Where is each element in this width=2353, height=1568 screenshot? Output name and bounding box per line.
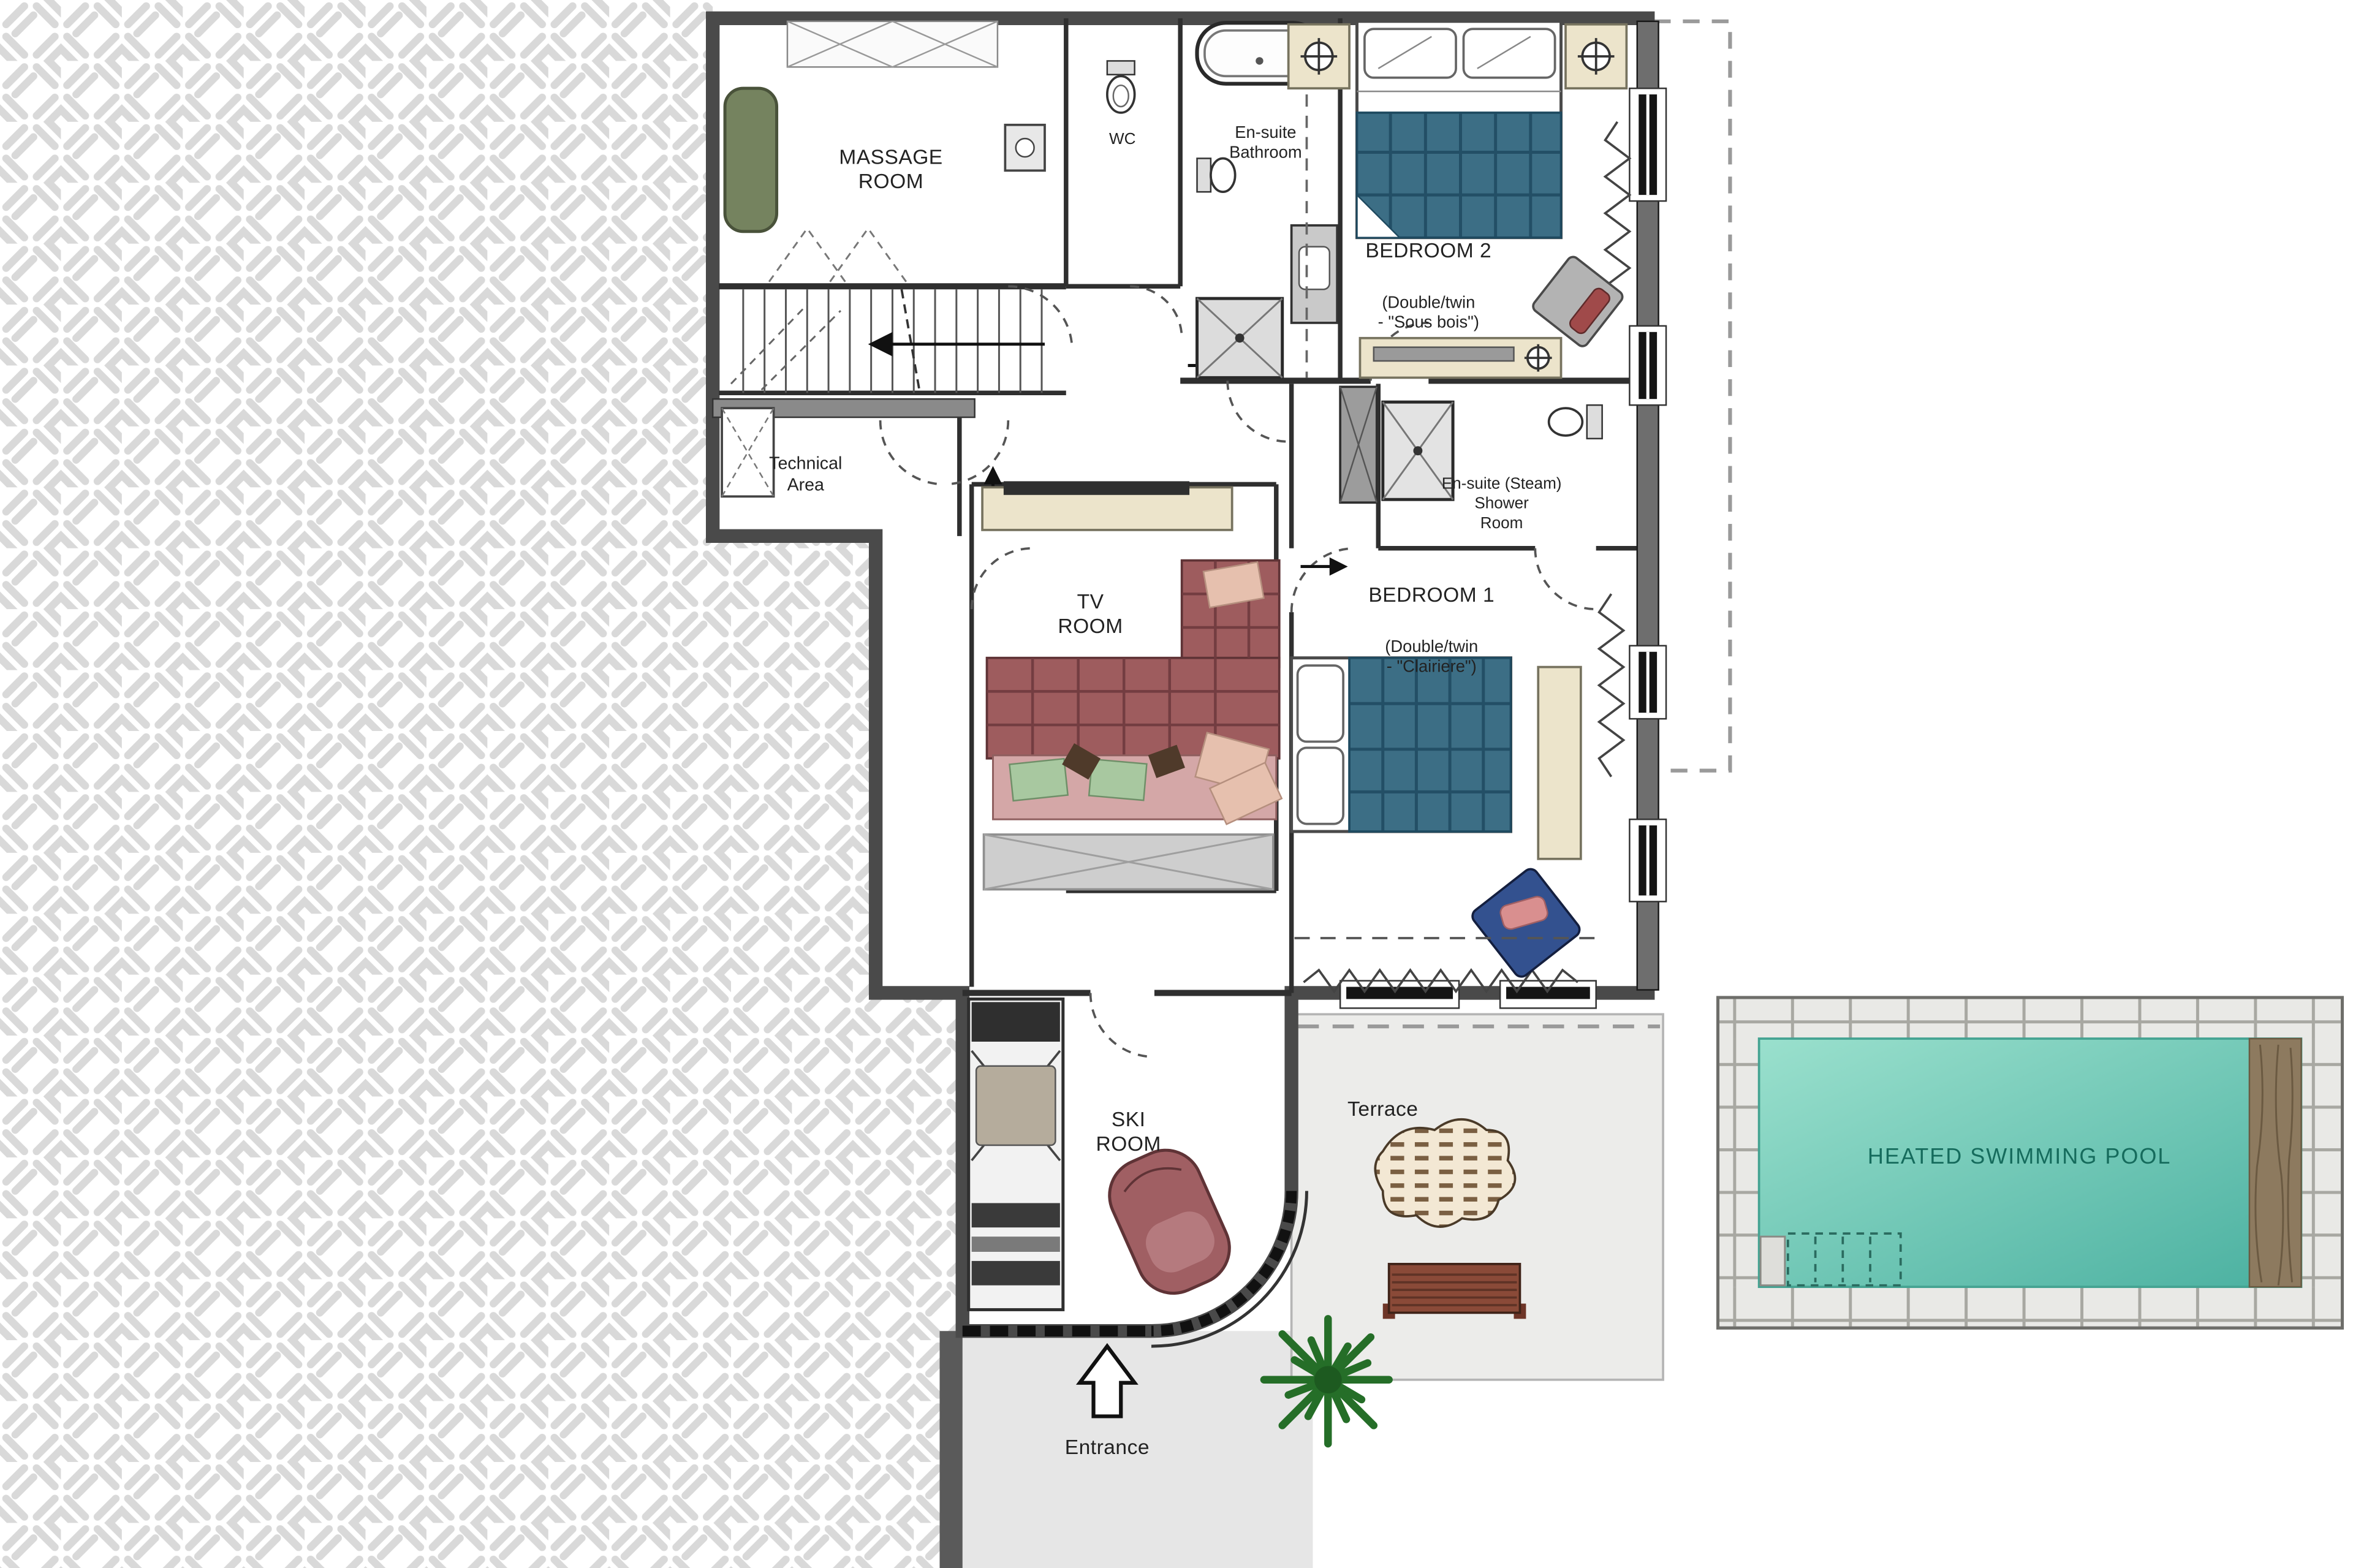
- terrace-bench: [1383, 1264, 1526, 1319]
- walkway-wall: [939, 1331, 962, 1568]
- wc-toilet: [1107, 61, 1135, 113]
- floor-plan-page: MASSAGE ROOM WC En-suite Bathroom BEDROO…: [0, 0, 2353, 1568]
- tv: [1004, 481, 1189, 494]
- bath-toilet: [1211, 158, 1235, 192]
- bed-2-blanket: [1357, 113, 1561, 238]
- window-bench: [1538, 667, 1581, 859]
- entrance-walkway: [963, 1331, 1313, 1568]
- bed-1-blanket: [1349, 658, 1510, 831]
- stair-closet: [722, 408, 774, 496]
- ski-cabinet: [969, 999, 1063, 1309]
- massage-table: [725, 88, 777, 232]
- pool-water: [1759, 1039, 2302, 1287]
- pool-deck: [2249, 1039, 2302, 1287]
- floor-plan: MASSAGE ROOM WC En-suite Bathroom BEDROO…: [0, 0, 2353, 1568]
- tree-icon: [1264, 1319, 1389, 1444]
- rug: [984, 835, 1273, 889]
- floor-plan-drawing: [0, 0, 2353, 1568]
- swimming-pool: [1718, 998, 2343, 1328]
- terrace-rock: [1375, 1119, 1515, 1227]
- steam-toilet: [1549, 408, 1583, 436]
